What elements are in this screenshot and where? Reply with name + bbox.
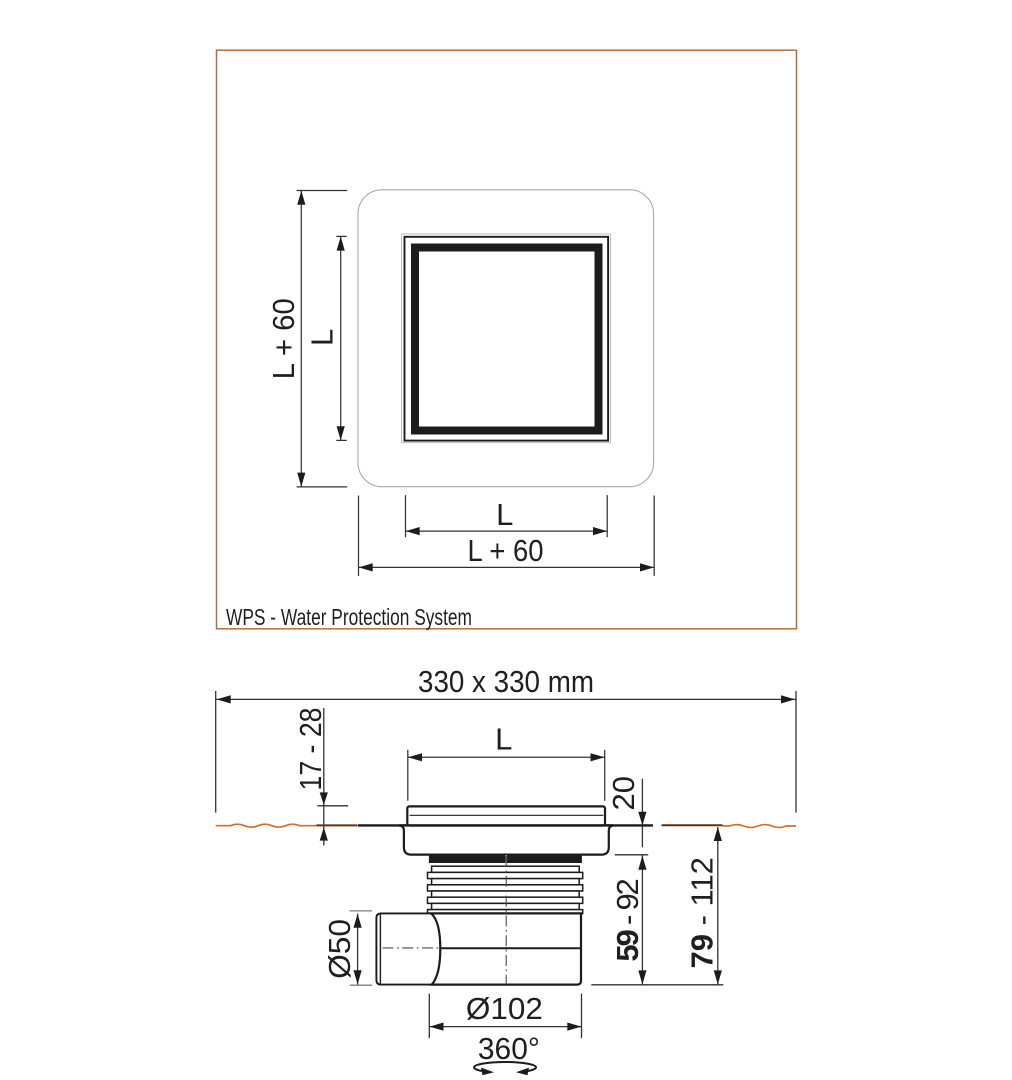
svg-text:L + 60: L + 60: [266, 298, 301, 379]
svg-text:L + 60: L + 60: [468, 533, 544, 568]
svg-text:WPS - Water Protection System: WPS - Water Protection System: [226, 604, 472, 630]
svg-text:20: 20: [606, 776, 641, 810]
svg-text:79 - 112: 79 - 112: [685, 857, 720, 968]
svg-text:L: L: [496, 497, 513, 532]
svg-text:17 - 28: 17 - 28: [293, 708, 328, 791]
svg-text:330 x 330 mm: 330 x 330 mm: [418, 664, 594, 699]
svg-text:L: L: [305, 329, 340, 346]
svg-text:360°: 360°: [478, 1031, 540, 1066]
svg-text:59 - 92: 59 - 92: [610, 879, 645, 961]
svg-text:Ø102: Ø102: [466, 991, 543, 1026]
svg-text:L: L: [495, 722, 512, 757]
svg-text:Ø50: Ø50: [322, 919, 357, 979]
